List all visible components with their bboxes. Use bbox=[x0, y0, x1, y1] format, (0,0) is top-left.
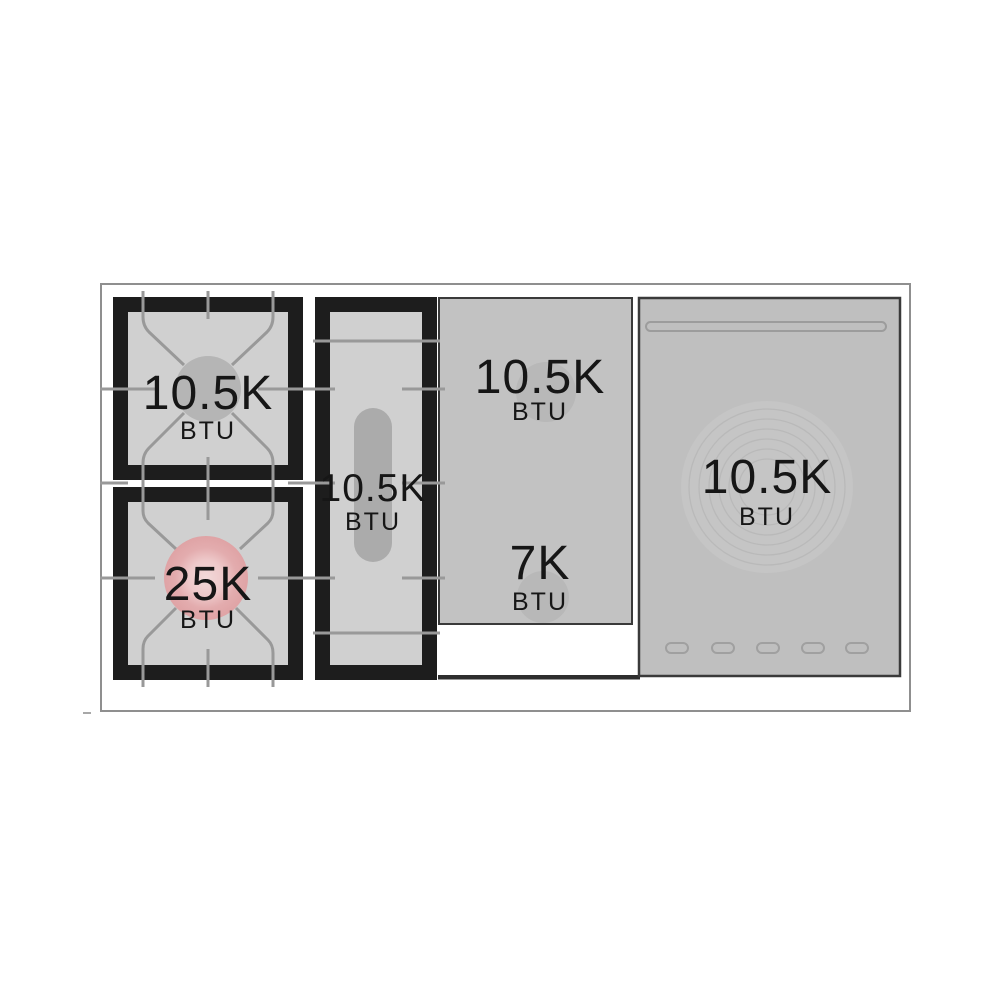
right-rear-burner-unit-label: BTU bbox=[460, 400, 620, 425]
stray-artifact-dash bbox=[83, 712, 91, 714]
left-front-burner-unit-label: BTU bbox=[128, 608, 288, 633]
round-plate-unit-label: BTU bbox=[687, 505, 847, 530]
center-griddle-unit-label: BTU bbox=[293, 510, 453, 535]
right-front-burner-power-label: 7K bbox=[460, 540, 620, 588]
left-rear-burner-power-label: 10.5K bbox=[128, 370, 288, 418]
cooktop-diagram: 10.5K BTU 25K BTU 10.5K BTU 10.5K BTU 7K… bbox=[0, 0, 1000, 1000]
left-rear-burner-unit-label: BTU bbox=[128, 419, 288, 444]
two-burner-panel-white-strip bbox=[439, 626, 632, 675]
two-burner-panel-bottom-edge bbox=[438, 675, 640, 680]
left-front-burner-power-label: 25K bbox=[128, 561, 288, 609]
right-rear-burner-power-label: 10.5K bbox=[460, 354, 620, 402]
right-front-burner-unit-label: BTU bbox=[460, 590, 620, 615]
center-griddle-power-label: 10.5K bbox=[293, 469, 453, 508]
round-plate-power-label: 10.5K bbox=[687, 454, 847, 502]
